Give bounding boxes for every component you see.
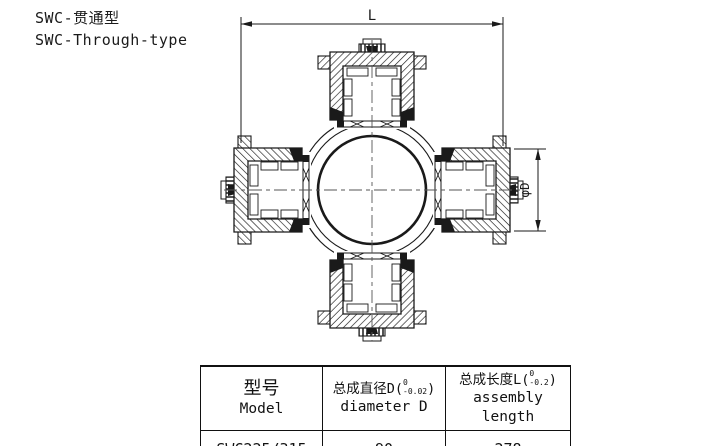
- diameter-value: 90: [323, 431, 446, 446]
- col-model-header-en: Model: [201, 400, 322, 419]
- length-tolerance: 0-0.2: [529, 370, 548, 388]
- col-diameter-header-zh: 总成直径D(0-0.02): [323, 380, 445, 398]
- diameter-tolerance: 0-0.02: [403, 379, 427, 397]
- model-value: SWC225/315: [201, 431, 323, 446]
- page: SWC-贯通型 SWC-Through-type: [0, 0, 716, 446]
- col-model-header-zh: 型号: [201, 378, 322, 401]
- col-model-header: 型号 Model: [201, 366, 323, 431]
- spec-table-header-row: 型号 Model 总成直径D(0-0.02) diameter D 总成长度L(…: [201, 366, 571, 431]
- col-length-header-en: assembly length: [446, 389, 570, 427]
- spec-table-row: SWC225/315 90 278: [201, 431, 571, 446]
- length-value: 278: [446, 431, 571, 446]
- col-length-header: 总成长度L(0-0.2) assembly length: [446, 366, 571, 431]
- diameter-dimension-label: φD: [517, 182, 532, 197]
- spec-table: 型号 Model 总成直径D(0-0.02) diameter D 总成长度L(…: [200, 365, 571, 446]
- length-dimension-label: L: [368, 8, 376, 24]
- col-length-header-zh: 总成长度L(0-0.2): [446, 371, 570, 389]
- col-diameter-header-en: diameter D: [323, 398, 445, 417]
- col-diameter-header: 总成直径D(0-0.02) diameter D: [323, 366, 446, 431]
